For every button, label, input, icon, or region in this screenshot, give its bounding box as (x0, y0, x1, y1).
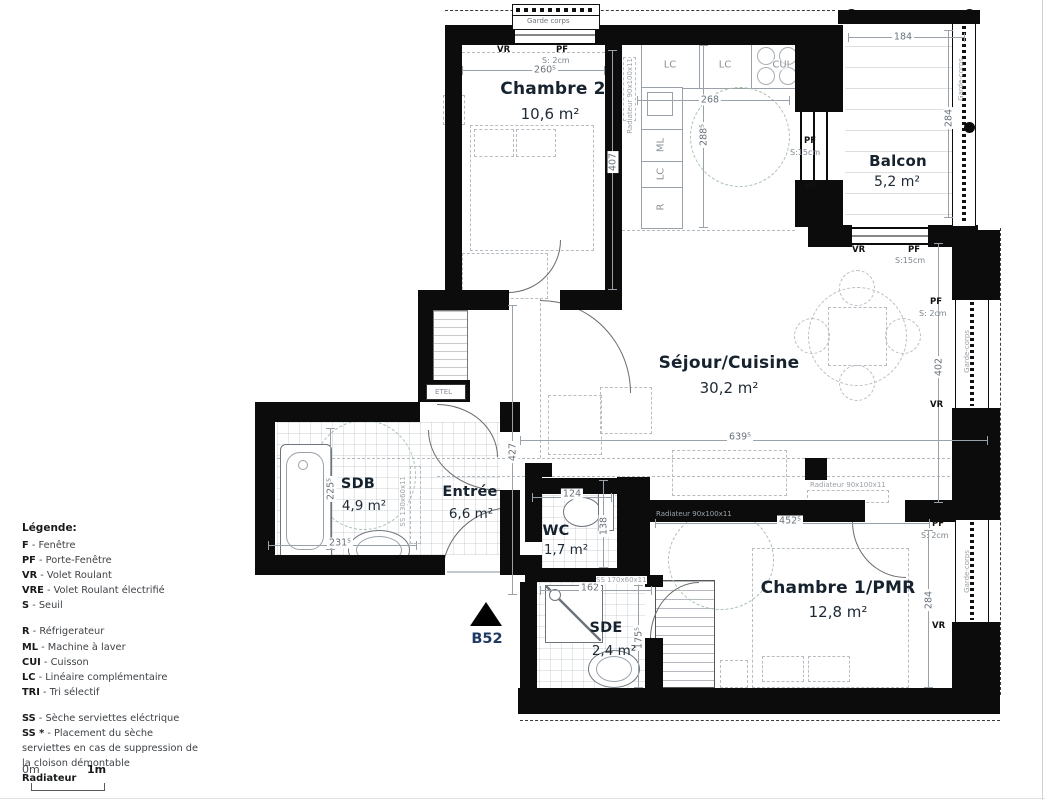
pf-label-top: PF (556, 45, 568, 55)
legend-text: - Volet Roulant électrifié (47, 585, 165, 596)
etel-label: ETEL (435, 388, 452, 396)
duct-shaft (617, 477, 650, 574)
legend-abbr: VRE (22, 585, 44, 596)
dim-balcon-width: 184 (892, 32, 914, 43)
legend-text: - Réfrigerateur (33, 626, 105, 637)
legend-text-line: serviettes en cas de suppression de (22, 743, 212, 756)
dim-balcon-height: 284 (944, 107, 955, 129)
legend-text: - Cuisson (44, 657, 89, 668)
wall (952, 408, 1000, 520)
dim-chambre1-height: 284 (924, 589, 935, 611)
screenshot-edge (1042, 0, 1043, 800)
legend-abbr: VR (22, 570, 37, 581)
screenshot-edge (0, 798, 1045, 799)
legend-text: - Placement du sèche (47, 728, 153, 739)
legend-item-ss-star: SS * - Placement du sèche (22, 728, 212, 741)
lc3-label: LC (656, 168, 667, 181)
legend-item: F - Fenêtre (22, 540, 212, 553)
wall (795, 25, 843, 112)
dim-wc-height: 138 (599, 515, 610, 537)
radiator-chambre1-label: Radiateur 90x100x11 (656, 510, 732, 518)
wall (595, 25, 795, 45)
vr-label-top: VR (497, 45, 510, 55)
wall (560, 290, 622, 310)
wall (525, 463, 542, 542)
balcony-post (964, 122, 975, 133)
legend-abbr: R (22, 626, 30, 637)
side-table (548, 395, 602, 455)
wall (500, 490, 520, 575)
door-arc-sejour (540, 300, 631, 393)
legend-item: PF - Porte-Fenêtre (22, 555, 212, 568)
placard-shelves (433, 310, 468, 382)
vr-label-sejour: VR (930, 400, 943, 410)
garde-corps-bar (513, 15, 599, 16)
balcony-post (964, 9, 975, 20)
wall (255, 402, 420, 422)
balcon-name: Balcon (869, 152, 927, 170)
garde-corps-sejour-label: Garde-corps (963, 330, 971, 373)
legend: Légende: F - Fenêtre PF - Porte-Fenêtre … (22, 522, 212, 789)
wall (650, 688, 1000, 714)
towel-dryer-sde-label: SS 170x60x11 (596, 576, 647, 584)
wc-area: 1,7 m² (544, 542, 588, 558)
legend-text: - Machine à laver (41, 642, 125, 653)
chambre2-vr-dash (462, 52, 605, 53)
dim-kitchen-height: 288⁵ (699, 122, 710, 148)
garde-corps-top-label: Garde corps (527, 17, 570, 25)
etel-niche: ETEL (426, 384, 466, 400)
legend-text: - Fenêtre (32, 540, 76, 551)
pf-label-sejour: PF (930, 297, 942, 307)
legend-item: TRI - Tri sélectif (22, 687, 212, 700)
garde-corps-dashes (516, 8, 596, 12)
kitchen-balcony-window (800, 112, 828, 180)
dim-sejour-width: 639⁵ (727, 432, 753, 443)
dim-entree-height: 427 (508, 441, 519, 463)
dim-sdb-width: 231⁵ (327, 538, 353, 549)
entree-name: Entrée (442, 484, 497, 500)
towel-dryer-sdb-label: SS 130x60x11 (399, 476, 407, 527)
chair (885, 318, 921, 354)
wall (952, 622, 1000, 692)
entree-area: 6,6 m² (449, 506, 493, 522)
garde-corps-top-block: Garde corps (512, 4, 600, 30)
dim-line (520, 440, 988, 441)
vr-label-chambre1: VR (932, 621, 945, 631)
kitchen-open-edge-dash (622, 230, 795, 231)
legend-abbr: LC (22, 672, 35, 683)
chambre1-name: Chambre 1/PMR (761, 578, 916, 598)
seuil-label-top: S: 2cm (542, 56, 570, 65)
legend-gap (22, 702, 212, 713)
door-arc-chambre2 (508, 240, 561, 293)
unit-label: B52 (471, 631, 502, 647)
pillow (474, 129, 514, 157)
lc1-label: LC (664, 60, 677, 71)
legend-abbr: ML (22, 642, 38, 653)
dim-kitchen-width: 268 (699, 95, 721, 106)
sde-area: 2,4 m² (592, 643, 636, 659)
legend-text: - Linéaire complémentaire (39, 672, 168, 683)
vr-label-kitchen-balcony: VR (804, 181, 817, 191)
balcony-post (846, 9, 857, 20)
legend-abbr: TRI (22, 687, 40, 698)
wall (445, 25, 462, 292)
sejour-window-garde-corps (955, 300, 989, 408)
legend-text: - Seuil (32, 600, 63, 611)
floor-plan: Garde corps ETEL LC LC CUI ML LC R (0, 0, 1045, 800)
dim-wc-width: 124 (561, 489, 583, 500)
seuil-label-balcony: S:15cm (895, 256, 925, 265)
pf-label-balcony: PF (908, 245, 920, 255)
legend-item: SS - Sèche serviettes eléctrique (22, 713, 212, 726)
pf-label-kitchen-balcony: PF (804, 136, 816, 146)
lc2-label: LC (719, 60, 732, 71)
pillow (516, 129, 556, 157)
towel-dryer-sdb (410, 466, 421, 544)
dining-table-top (828, 307, 887, 366)
kitchen-sink-basin (647, 92, 673, 116)
legend-item: VRE - Volet Roulant électrifié (22, 585, 212, 598)
seuil-label-chambre1: S: 2cm (921, 531, 949, 540)
balcony-door-window (852, 227, 928, 245)
garde-corps-balcony-label: Garde-corps (957, 58, 965, 101)
wall (645, 575, 663, 587)
legend-item: ML - Machine à laver (22, 642, 212, 655)
tv-unit (600, 387, 652, 434)
wc-name: WC (542, 523, 569, 539)
pillow (762, 656, 804, 682)
chambre1-area: 12,8 m² (809, 603, 868, 621)
facade-dashed-line-bottom (520, 720, 1000, 721)
dim-sde-width: 162 (579, 583, 601, 594)
balcony-top-wall (838, 10, 980, 24)
balcon-area: 5,2 m² (874, 174, 920, 190)
entrance-arrow-icon (470, 602, 502, 626)
structural-post (805, 458, 827, 480)
legend-item: S - Seuil (22, 600, 212, 613)
sdb-area: 4,9 m² (342, 498, 386, 514)
legend-item: VR - Volet Roulant (22, 570, 212, 583)
pillow (808, 656, 850, 682)
legend-text: - Volet Roulant (40, 570, 112, 581)
radiator-chambre2-label: Radiateur 90x100x11 (626, 58, 634, 134)
legend-title: Légende: (22, 522, 212, 536)
chair (794, 318, 830, 354)
garde-corps-chambre1-label: Garde-corps (963, 550, 971, 593)
scale-one-label: 1m (87, 763, 106, 776)
sde-washbasin-inner (596, 656, 632, 682)
dim-chambre1-width: 452⁵ (777, 516, 803, 527)
radiator-sejour-label: Radiateur 90x100x11 (810, 481, 886, 489)
cui-label: CUI (772, 60, 789, 71)
sejour-name: Séjour/Cuisine (659, 353, 800, 373)
chambre2-area: 10,6 m² (521, 105, 580, 123)
legend-text: - Porte-Fenêtre (39, 555, 112, 566)
nightstand (720, 660, 748, 688)
legend-abbr: SS (22, 713, 36, 724)
wall (445, 290, 509, 310)
wall (795, 180, 843, 227)
vr-label-balcony: VR (852, 245, 865, 255)
wall (500, 402, 520, 432)
legend-text: - Sèche serviettes eléctrique (39, 713, 179, 724)
sejour-area: 30,2 m² (700, 379, 759, 397)
r-label: R (656, 204, 667, 211)
dim-sdb-height: 225⁵ (326, 476, 337, 502)
wall (518, 688, 650, 714)
scale-zero-label: 0m (22, 763, 40, 776)
legend-text: - Tri sélectif (43, 687, 99, 698)
legend-gap (22, 615, 212, 626)
seuil-label-kitchen-balcony: S:15cm (790, 148, 820, 157)
facade-dashed-line-right (1000, 228, 1001, 695)
bathtub-drain (298, 460, 308, 470)
legend-text-line: la cloison démontable (22, 758, 212, 771)
balcony-decking (845, 26, 952, 225)
legend-abbr: SS * (22, 728, 44, 739)
wall (808, 225, 852, 247)
wall (905, 500, 955, 522)
dim-chambre2-width: 260⁵ (532, 65, 558, 76)
wall (645, 638, 663, 690)
dim-chambre2-height: 407 (608, 151, 619, 173)
ml-label: ML (656, 138, 667, 152)
seuil-label-sejour: S: 2cm (919, 309, 947, 318)
scale-bracket (31, 783, 105, 791)
legend-abbr: S (22, 600, 29, 611)
legend-abbr: CUI (22, 657, 41, 668)
legend-item: LC - Linéaire complémentaire (22, 672, 212, 685)
facade-dashed-line-top (445, 10, 835, 11)
door-arc-placard (437, 404, 498, 457)
chambre2-name: Chambre 2 (500, 79, 605, 99)
chambre1-window-garde-corps (955, 520, 989, 622)
legend-abbr: PF (22, 555, 36, 566)
dim-sejour-height: 402 (934, 356, 945, 378)
wall (418, 555, 445, 575)
legend-abbr: F (22, 540, 29, 551)
buffet (672, 450, 787, 496)
wall (520, 582, 537, 688)
chair (839, 365, 875, 401)
wall (418, 290, 433, 382)
legend-item: R - Réfrigerateur (22, 626, 212, 639)
chair (839, 270, 875, 306)
wall (255, 402, 275, 575)
pf-label-chambre1: PF (932, 519, 944, 529)
sde-name: SDE (590, 620, 623, 636)
legend-item: CUI - Cuisson (22, 657, 212, 670)
sdb-name: SDB (341, 476, 375, 492)
wall (255, 555, 425, 575)
